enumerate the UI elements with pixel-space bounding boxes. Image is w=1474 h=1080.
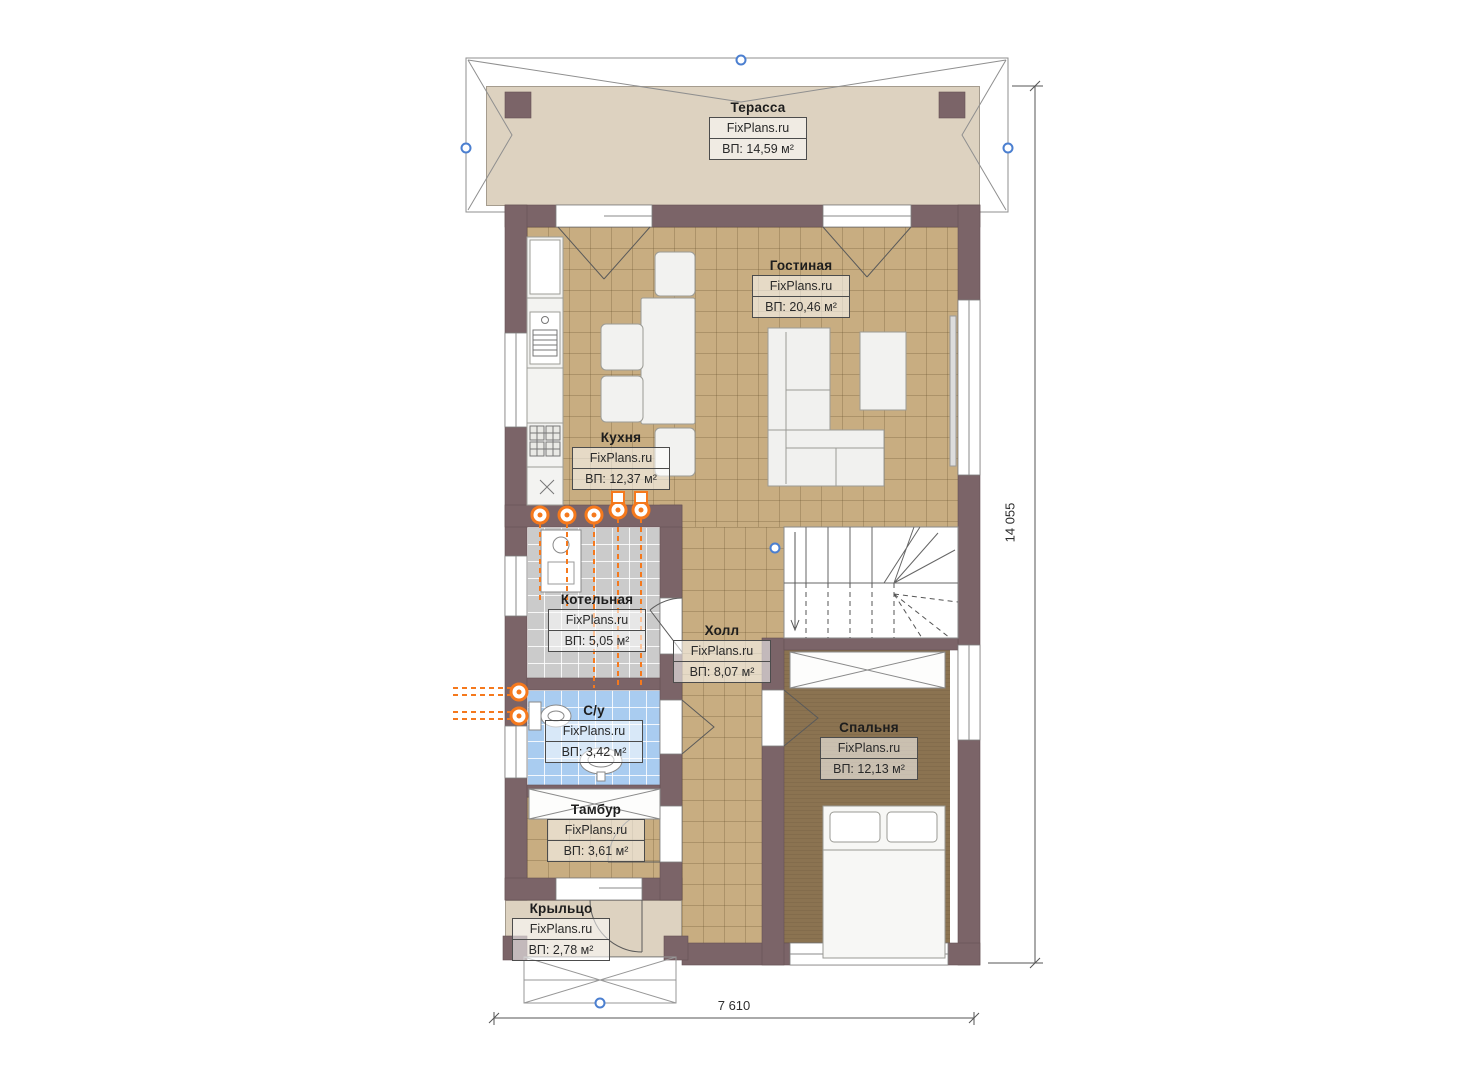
bed-icon (823, 806, 945, 958)
chair-icon (655, 252, 695, 296)
floor-plan: Терасса FixPlans.ru ВП: 14,59 м² Гостина… (0, 0, 1474, 1080)
fridge-icon (530, 240, 560, 294)
porch-canopy (524, 957, 676, 1003)
staircase (784, 527, 958, 638)
dimension-width-label: 7 610 (718, 998, 751, 1013)
dimension-height-label: 14 055 (1002, 503, 1017, 543)
room-label-wc: С/у FixPlans.ru ВП: 3,42 м² (545, 703, 643, 763)
room-label-porch: Крыльцо FixPlans.ru ВП: 2,78 м² (512, 901, 610, 961)
plan-drawing (0, 0, 1474, 1080)
chair-icon (601, 376, 643, 422)
room-label-living: Гостиная FixPlans.ru ВП: 20,46 м² (752, 258, 850, 318)
living-furniture (768, 316, 956, 486)
dining-table-icon (641, 298, 695, 424)
room-label-tambour: Тамбур FixPlans.ru ВП: 3,61 м² (547, 802, 645, 862)
bedroom-wardrobe-icon (790, 652, 945, 688)
room-label-bedroom: Спальня FixPlans.ru ВП: 12,13 м² (820, 720, 918, 780)
room-label-terrace: Терасса FixPlans.ru ВП: 14,59 м² (709, 100, 807, 160)
chair-icon (601, 324, 643, 370)
sink-unit-icon (530, 312, 560, 364)
coffee-table-icon (860, 332, 906, 410)
room-label-boiler: Котельная FixPlans.ru ВП: 5,05 м² (548, 592, 646, 652)
room-label-hall: Холл FixPlans.ru ВП: 8,07 м² (673, 623, 771, 683)
room-label-kitchen: Кухня FixPlans.ru ВП: 12,37 м² (572, 430, 670, 490)
kitchen-counter (527, 237, 563, 505)
boiler-unit-icon (541, 530, 581, 592)
radiator-icon (950, 316, 956, 466)
